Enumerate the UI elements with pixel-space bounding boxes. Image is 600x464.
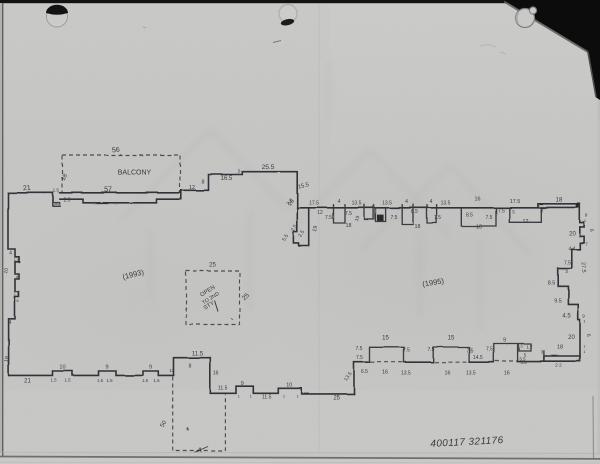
svg-text:25: 25 bbox=[209, 263, 216, 269]
svg-text:11.5: 11.5 bbox=[262, 395, 272, 401]
svg-text:4: 4 bbox=[338, 199, 341, 205]
svg-text:18: 18 bbox=[557, 345, 563, 351]
svg-text:8.5: 8.5 bbox=[548, 281, 556, 287]
svg-text:16: 16 bbox=[213, 371, 219, 377]
svg-text:8.5: 8.5 bbox=[411, 209, 418, 215]
svg-text:15: 15 bbox=[382, 336, 389, 342]
svg-text:4.4: 4.4 bbox=[569, 247, 576, 253]
svg-text:17.5: 17.5 bbox=[510, 199, 521, 205]
svg-text:7.5: 7.5 bbox=[564, 261, 571, 267]
svg-text:16: 16 bbox=[382, 370, 388, 376]
svg-text:16: 16 bbox=[445, 371, 451, 377]
svg-text:12: 12 bbox=[317, 210, 323, 216]
svg-text:.5: .5 bbox=[237, 168, 241, 173]
svg-text:20: 20 bbox=[568, 335, 575, 341]
svg-text:10: 10 bbox=[286, 383, 292, 389]
svg-text:3: 3 bbox=[565, 269, 568, 274]
svg-text:6.5: 6.5 bbox=[361, 369, 368, 375]
svg-text:1.5: 1.5 bbox=[50, 377, 57, 382]
svg-text:8: 8 bbox=[189, 364, 192, 370]
svg-text:4.5: 4.5 bbox=[562, 314, 571, 320]
svg-text:57: 57 bbox=[104, 186, 112, 193]
svg-text:7.5: 7.5 bbox=[356, 346, 363, 352]
svg-text:1.7: 1.7 bbox=[526, 344, 533, 349]
svg-text:7: 7 bbox=[585, 242, 588, 247]
svg-text:7.5: 7.5 bbox=[486, 347, 493, 353]
svg-text:4: 4 bbox=[430, 199, 433, 205]
svg-text:9: 9 bbox=[241, 381, 244, 387]
svg-text:14.5: 14.5 bbox=[473, 355, 483, 361]
svg-text:1.5: 1.5 bbox=[153, 378, 160, 383]
svg-text:18: 18 bbox=[346, 223, 352, 229]
svg-text:9: 9 bbox=[149, 365, 152, 371]
svg-text:10: 10 bbox=[59, 365, 65, 371]
svg-text:11.5: 11.5 bbox=[192, 352, 204, 358]
svg-text:17.5: 17.5 bbox=[309, 201, 319, 207]
svg-text:12: 12 bbox=[189, 185, 195, 191]
svg-text:8.5: 8.5 bbox=[466, 213, 473, 219]
svg-text:4: 4 bbox=[9, 320, 12, 326]
svg-text:3: 3 bbox=[540, 209, 543, 214]
svg-text:1.5: 1.5 bbox=[64, 377, 71, 382]
svg-text:1.6: 1.6 bbox=[97, 378, 104, 383]
svg-text:7.5: 7.5 bbox=[403, 348, 410, 354]
svg-text:9: 9 bbox=[503, 338, 506, 344]
svg-text:7.5: 7.5 bbox=[325, 215, 332, 221]
svg-text:13.5: 13.5 bbox=[466, 371, 476, 377]
svg-text:15: 15 bbox=[448, 336, 455, 342]
svg-text:BALCONY: BALCONY bbox=[118, 170, 152, 177]
svg-text:18: 18 bbox=[415, 224, 421, 230]
svg-text:13.5: 13.5 bbox=[352, 201, 362, 207]
svg-text:13.5: 13.5 bbox=[401, 371, 411, 377]
svg-text:19: 19 bbox=[312, 225, 319, 232]
svg-text:1.5: 1.5 bbox=[14, 257, 20, 262]
svg-text:7.5: 7.5 bbox=[356, 355, 363, 361]
svg-text:1.5: 1.5 bbox=[53, 187, 60, 192]
svg-text:5.5: 5.5 bbox=[520, 360, 527, 365]
svg-text:16: 16 bbox=[475, 197, 481, 203]
svg-text:18: 18 bbox=[556, 198, 563, 204]
svg-text:4: 4 bbox=[405, 199, 408, 205]
svg-text:7.5: 7.5 bbox=[467, 349, 474, 355]
svg-text:9: 9 bbox=[105, 365, 108, 371]
svg-text:56: 56 bbox=[112, 146, 121, 154]
svg-text:12: 12 bbox=[523, 219, 529, 225]
svg-text:2 2: 2 2 bbox=[555, 363, 562, 368]
svg-text:21: 21 bbox=[23, 185, 31, 193]
svg-text:16.5: 16.5 bbox=[221, 176, 233, 182]
svg-text:16: 16 bbox=[504, 371, 510, 377]
svg-text:25: 25 bbox=[333, 396, 340, 402]
svg-text:7.5: 7.5 bbox=[434, 215, 441, 221]
svg-text:5: 5 bbox=[512, 210, 515, 215]
svg-text:1.5: 1.5 bbox=[14, 292, 20, 297]
svg-text:1.5: 1.5 bbox=[106, 378, 113, 383]
svg-text:7.5: 7.5 bbox=[428, 347, 435, 353]
svg-text:11.5: 11.5 bbox=[218, 386, 228, 392]
svg-text:9.5: 9.5 bbox=[554, 299, 562, 305]
svg-text:1.6: 1.6 bbox=[142, 378, 149, 383]
svg-text:8: 8 bbox=[202, 180, 205, 186]
svg-text:13.5: 13.5 bbox=[382, 201, 392, 207]
svg-text:21: 21 bbox=[24, 379, 31, 385]
svg-text:4: 4 bbox=[9, 251, 12, 257]
svg-text:11: 11 bbox=[169, 368, 174, 374]
svg-text:7.5: 7.5 bbox=[498, 209, 505, 215]
svg-text:7.5: 7.5 bbox=[486, 215, 493, 221]
svg-text:25.5: 25.5 bbox=[262, 164, 275, 171]
svg-text:15: 15 bbox=[476, 225, 482, 231]
svg-text:2.5: 2.5 bbox=[64, 198, 71, 204]
svg-text:7.5: 7.5 bbox=[345, 211, 352, 217]
svg-text:20: 20 bbox=[569, 232, 576, 238]
svg-text:9: 9 bbox=[585, 213, 588, 218]
svg-text:7.5: 7.5 bbox=[391, 215, 398, 221]
svg-text:27.5: 27.5 bbox=[580, 262, 587, 273]
svg-text:13.5: 13.5 bbox=[441, 201, 451, 207]
